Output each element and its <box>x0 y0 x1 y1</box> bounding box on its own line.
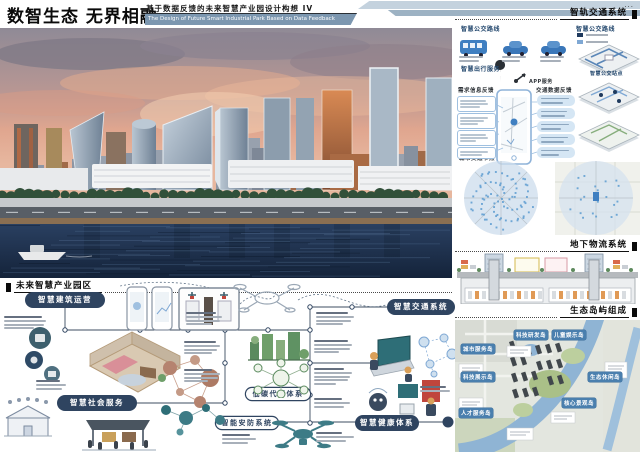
vertical-shaft <box>489 260 499 300</box>
site-label: 城市服务岛 <box>461 344 495 354</box>
underground-logistics-section-diagram <box>455 252 640 304</box>
text-block <box>502 56 526 63</box>
text-block <box>540 56 564 63</box>
subtitle-en: The Design of Future Smart Industrial Pa… <box>145 14 357 22</box>
text-block <box>459 56 483 63</box>
section-marker-square <box>632 308 637 317</box>
laptop-workspace-illustration <box>364 334 416 384</box>
vertical-shaft <box>589 260 599 300</box>
demand-info-title: 需求信息反馈 <box>458 86 494 94</box>
eco-header-label: 生态岛屿组成 <box>560 304 629 318</box>
edge-hub-node <box>443 417 454 428</box>
dotted-leader <box>455 12 557 20</box>
hero-render <box>0 28 452 278</box>
section-marker-square <box>632 10 637 19</box>
car-icon <box>541 41 566 56</box>
bus-icon <box>460 40 487 57</box>
city-sunset-illustration <box>0 28 452 278</box>
ground-level <box>457 272 638 278</box>
traffic-node-map-right <box>555 161 640 235</box>
bus-stops-map-tile <box>579 83 639 114</box>
site-label: 儿童娱乐岛 <box>552 330 586 340</box>
seawall <box>0 218 452 224</box>
demand-callout-box <box>457 147 496 159</box>
text-block <box>184 369 220 384</box>
text-block <box>316 312 354 327</box>
text-block <box>186 312 222 327</box>
traffic-feedback-title: 交通数据反馈 <box>536 86 572 94</box>
text-block <box>420 386 450 394</box>
feedback-item-pill <box>537 108 575 119</box>
feedback-item-pill <box>537 147 575 158</box>
poster-canvas: 数智生态 无界相融 基于数据反馈的未来智慧产业园设计构想 IV The Desi… <box>0 0 640 452</box>
pill-smart-transport: 智慧交通系统 <box>388 300 454 314</box>
site-label: 生态休闲岛 <box>588 372 622 382</box>
text-block <box>314 340 352 355</box>
slow-traffic-map-tile <box>579 121 639 152</box>
feedback-item-pill <box>537 95 575 106</box>
logistics-header-label: 地下物流系统 <box>560 238 629 252</box>
feedback-item-pill <box>537 121 575 132</box>
community-building-illustration <box>0 396 56 442</box>
dotted-leader <box>455 244 557 252</box>
demand-callout-box <box>457 96 496 112</box>
market-scene-illustration <box>78 410 158 452</box>
text-block <box>314 368 352 387</box>
car-icon <box>503 41 528 56</box>
text-block <box>314 398 352 409</box>
promenade <box>0 198 452 207</box>
data-nodes-network <box>414 330 458 378</box>
site-plan-map <box>455 320 640 452</box>
pill-smart-building: 智慧建筑运营 <box>26 293 104 307</box>
section-marker-square <box>632 242 637 251</box>
app-phones-illustration <box>126 286 174 332</box>
eco-cycle-diagram <box>248 358 314 398</box>
feedback-item-pill <box>537 134 575 145</box>
green-city-illustration <box>246 328 312 362</box>
traffic-node-map-left <box>464 161 538 235</box>
drone-sketch-icon <box>232 280 302 314</box>
subtitle-en-banner: The Design of Future Smart Industrial Pa… <box>145 13 357 25</box>
resource-network-diagram <box>150 348 236 436</box>
site-label: 人才服务岛 <box>459 408 493 418</box>
demand-callout-box <box>457 130 496 146</box>
eco-section-header: 生态岛屿组成 <box>455 306 637 318</box>
service-icon-bubbles <box>24 326 84 388</box>
dotted-leader <box>455 310 557 318</box>
site-label: 科技研发岛 <box>514 330 548 340</box>
bus-stops-label: 智慧公交站点 <box>590 70 623 77</box>
page-title: 数智生态 无界相融 <box>7 2 158 27</box>
smart-health-illustration <box>364 378 450 418</box>
app-service-label: APP服务 <box>529 78 553 85</box>
text-block <box>222 434 256 445</box>
subtitle-cn: 基于数据反馈的未来智慧产业园设计构想 IV <box>146 3 313 14</box>
route-legend <box>577 33 608 44</box>
text-block <box>184 341 220 356</box>
bus-routes-title: 智慧公交路线 <box>461 24 500 33</box>
rail-header-label: 智轨交通系统 <box>560 6 629 20</box>
travel-service-title: 智慧出行服务 <box>461 64 500 73</box>
routes-map-title: 智慧公交路线 <box>576 24 615 33</box>
pill-smart-health: 智慧健康体系 <box>356 416 418 430</box>
phone-map-diagram <box>497 90 531 164</box>
site-label: 核心景观岛 <box>562 398 596 408</box>
surface-buildings <box>457 254 633 272</box>
text-block <box>36 380 66 391</box>
text-block <box>316 432 354 443</box>
logistics-section-header: 地下物流系统 <box>455 240 637 252</box>
demand-callout-box <box>457 113 496 129</box>
gesture-hand-icon <box>514 74 525 83</box>
site-label: 科技展示岛 <box>461 372 495 382</box>
rail-section-header: 智轨交通系统 <box>455 8 637 20</box>
text-block <box>4 316 46 331</box>
